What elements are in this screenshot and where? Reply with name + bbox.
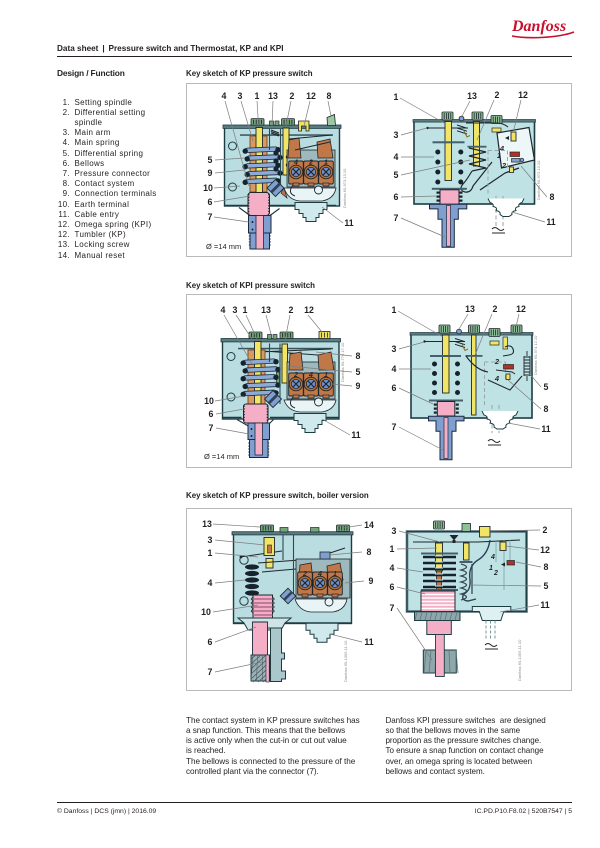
svg-text:2: 2	[494, 357, 500, 366]
svg-text:4: 4	[317, 571, 322, 578]
svg-text:2: 2	[495, 90, 500, 100]
svg-text:7: 7	[209, 423, 214, 433]
svg-text:4: 4	[221, 305, 226, 315]
svg-text:1: 1	[390, 544, 395, 554]
svg-text:3: 3	[392, 526, 397, 536]
svg-text:6: 6	[208, 197, 213, 207]
svg-text:Danfoss 60-1355.11.10: Danfoss 60-1355.11.10	[517, 639, 522, 681]
svg-text:5: 5	[544, 382, 549, 392]
svg-text:Danfoss 60-972.13.10: Danfoss 60-972.13.10	[536, 160, 541, 200]
svg-text:1: 1	[392, 305, 397, 315]
svg-text:10: 10	[204, 396, 214, 406]
svg-text:4: 4	[392, 364, 397, 374]
svg-text:9: 9	[208, 168, 213, 178]
svg-text:9: 9	[356, 381, 361, 391]
svg-text:7: 7	[208, 667, 213, 677]
svg-text:6: 6	[394, 192, 399, 202]
svg-text:8: 8	[550, 192, 555, 202]
svg-text:1: 1	[324, 160, 328, 167]
svg-text:2: 2	[293, 372, 298, 379]
svg-text:7: 7	[392, 422, 397, 432]
svg-text:4: 4	[293, 160, 298, 167]
svg-text:3: 3	[208, 535, 213, 545]
svg-text:7: 7	[208, 212, 213, 222]
svg-text:13: 13	[467, 91, 477, 101]
svg-text:2: 2	[493, 570, 498, 577]
svg-text:2: 2	[308, 160, 313, 167]
svg-text:3: 3	[394, 130, 399, 140]
svg-text:11: 11	[546, 217, 555, 227]
svg-text:1: 1	[208, 548, 213, 558]
svg-text:7: 7	[394, 213, 399, 223]
svg-text:Danfoss: Danfoss	[511, 18, 566, 35]
svg-text:14: 14	[364, 520, 374, 530]
svg-text:12: 12	[540, 545, 550, 555]
svg-text:11: 11	[364, 637, 373, 647]
svg-text:3: 3	[238, 91, 243, 101]
svg-text:8: 8	[327, 91, 332, 101]
svg-text:8: 8	[356, 351, 361, 361]
svg-text:8: 8	[544, 404, 549, 414]
svg-text:13: 13	[268, 91, 278, 101]
svg-text:4: 4	[222, 91, 227, 101]
svg-text:5: 5	[208, 155, 213, 165]
svg-text:Ø =14 mm: Ø =14 mm	[206, 242, 241, 251]
svg-text:11: 11	[541, 424, 550, 434]
svg-text:Danfoss 60-974.12.10: Danfoss 60-974.12.10	[533, 335, 538, 375]
svg-text:1: 1	[243, 305, 248, 315]
svg-text:9: 9	[369, 576, 374, 586]
svg-text:6: 6	[390, 582, 395, 592]
svg-text:5: 5	[356, 367, 361, 377]
svg-text:1: 1	[497, 151, 501, 160]
svg-text:10: 10	[201, 607, 211, 617]
svg-text:12: 12	[518, 90, 528, 100]
svg-text:Ø =14 mm: Ø =14 mm	[204, 452, 239, 461]
svg-text:1: 1	[394, 92, 399, 102]
svg-text:3: 3	[392, 344, 397, 354]
svg-text:12: 12	[306, 91, 316, 101]
svg-text:2: 2	[543, 525, 548, 535]
svg-text:7: 7	[390, 603, 395, 613]
svg-text:5: 5	[544, 581, 549, 591]
svg-text:8: 8	[367, 547, 372, 557]
svg-text:4: 4	[494, 374, 500, 383]
svg-text:Danfoss 60-973.13.10: Danfoss 60-973.13.10	[342, 168, 347, 208]
svg-text:2: 2	[302, 571, 307, 578]
svg-text:11: 11	[540, 600, 549, 610]
svg-text:6: 6	[209, 409, 214, 419]
svg-text:1: 1	[489, 565, 493, 572]
svg-text:11: 11	[344, 218, 353, 228]
svg-text:2: 2	[501, 161, 507, 170]
svg-text:10: 10	[203, 183, 213, 193]
svg-text:Danfoss 60-1356.11.10: Danfoss 60-1356.11.10	[343, 640, 348, 682]
svg-text:2: 2	[290, 91, 295, 101]
svg-text:4: 4	[308, 372, 313, 379]
svg-text:11: 11	[351, 430, 360, 440]
svg-text:13: 13	[202, 519, 212, 529]
svg-text:6: 6	[208, 637, 213, 647]
svg-text:3: 3	[233, 305, 238, 315]
svg-text:4: 4	[208, 578, 213, 588]
svg-text:12: 12	[304, 305, 314, 315]
svg-text:12: 12	[516, 304, 526, 314]
svg-text:1: 1	[324, 372, 328, 379]
svg-text:Danfoss 60-776.17.10: Danfoss 60-776.17.10	[340, 342, 345, 382]
svg-text:5: 5	[394, 170, 399, 180]
svg-text:8: 8	[544, 562, 549, 572]
svg-text:6: 6	[392, 383, 397, 393]
svg-text:2: 2	[289, 305, 294, 315]
svg-text:4: 4	[390, 563, 395, 573]
svg-text:2: 2	[493, 304, 498, 314]
svg-text:13: 13	[261, 305, 271, 315]
svg-text:1: 1	[255, 91, 260, 101]
svg-text:1: 1	[333, 571, 337, 578]
svg-text:13: 13	[465, 304, 475, 314]
svg-text:4: 4	[490, 554, 495, 561]
svg-text:4: 4	[394, 152, 399, 162]
